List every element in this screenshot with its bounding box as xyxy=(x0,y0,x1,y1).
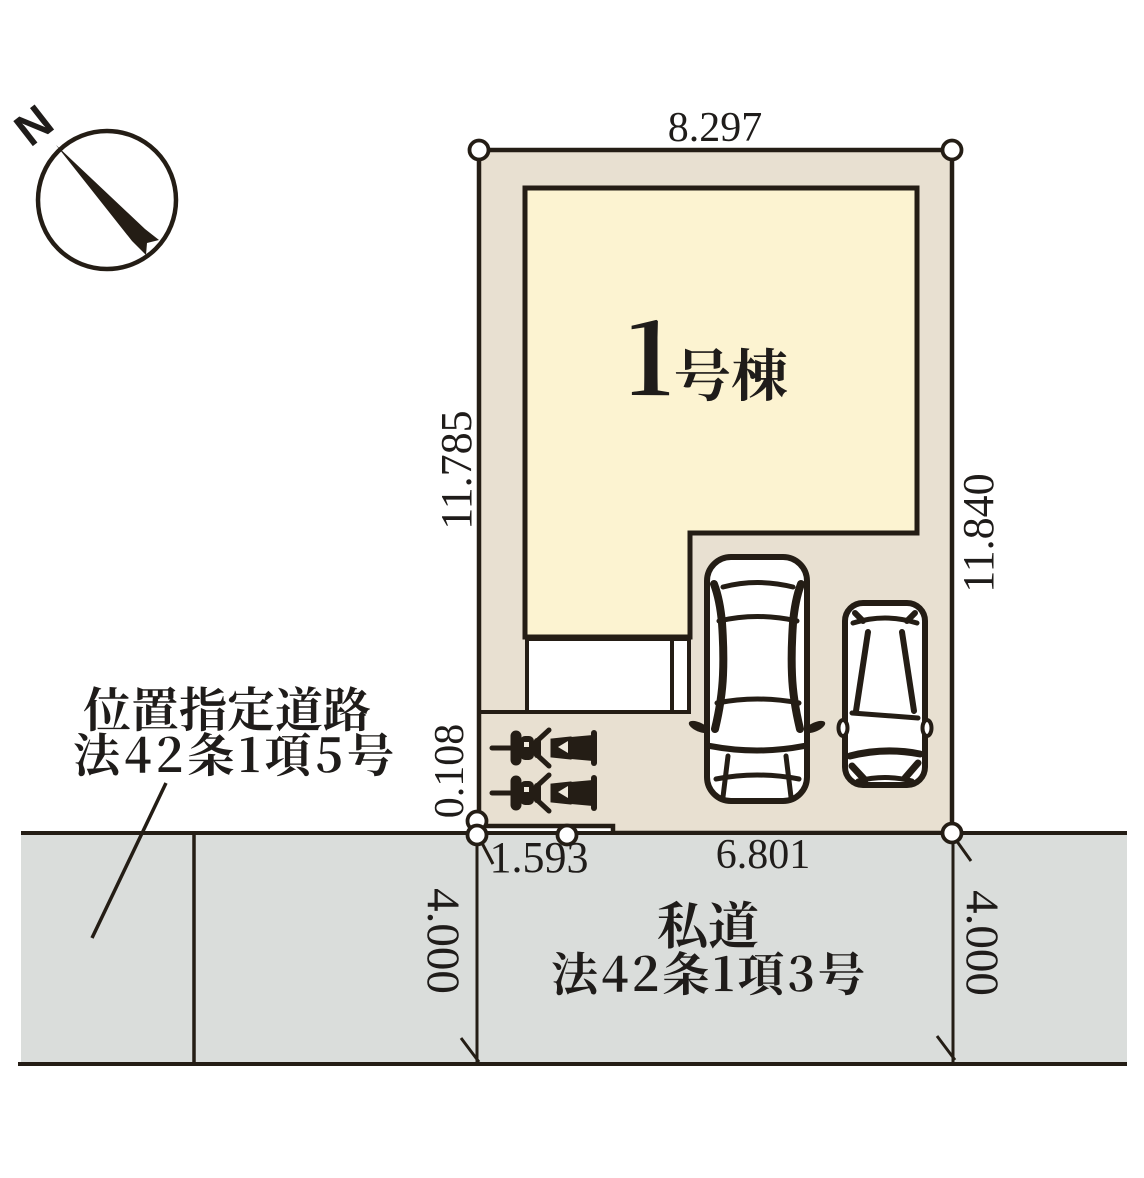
svg-text:N: N xyxy=(5,94,63,155)
svg-text:4.000: 4.000 xyxy=(417,888,469,994)
svg-text:11.785: 11.785 xyxy=(432,410,481,529)
svg-text:11.840: 11.840 xyxy=(954,473,1003,592)
svg-text:1.593: 1.593 xyxy=(490,833,589,882)
svg-text:0.108: 0.108 xyxy=(427,724,473,819)
svg-text:8.297: 8.297 xyxy=(668,105,763,151)
svg-text:6.801: 6.801 xyxy=(716,832,811,878)
svg-text:4.000: 4.000 xyxy=(956,890,1008,996)
